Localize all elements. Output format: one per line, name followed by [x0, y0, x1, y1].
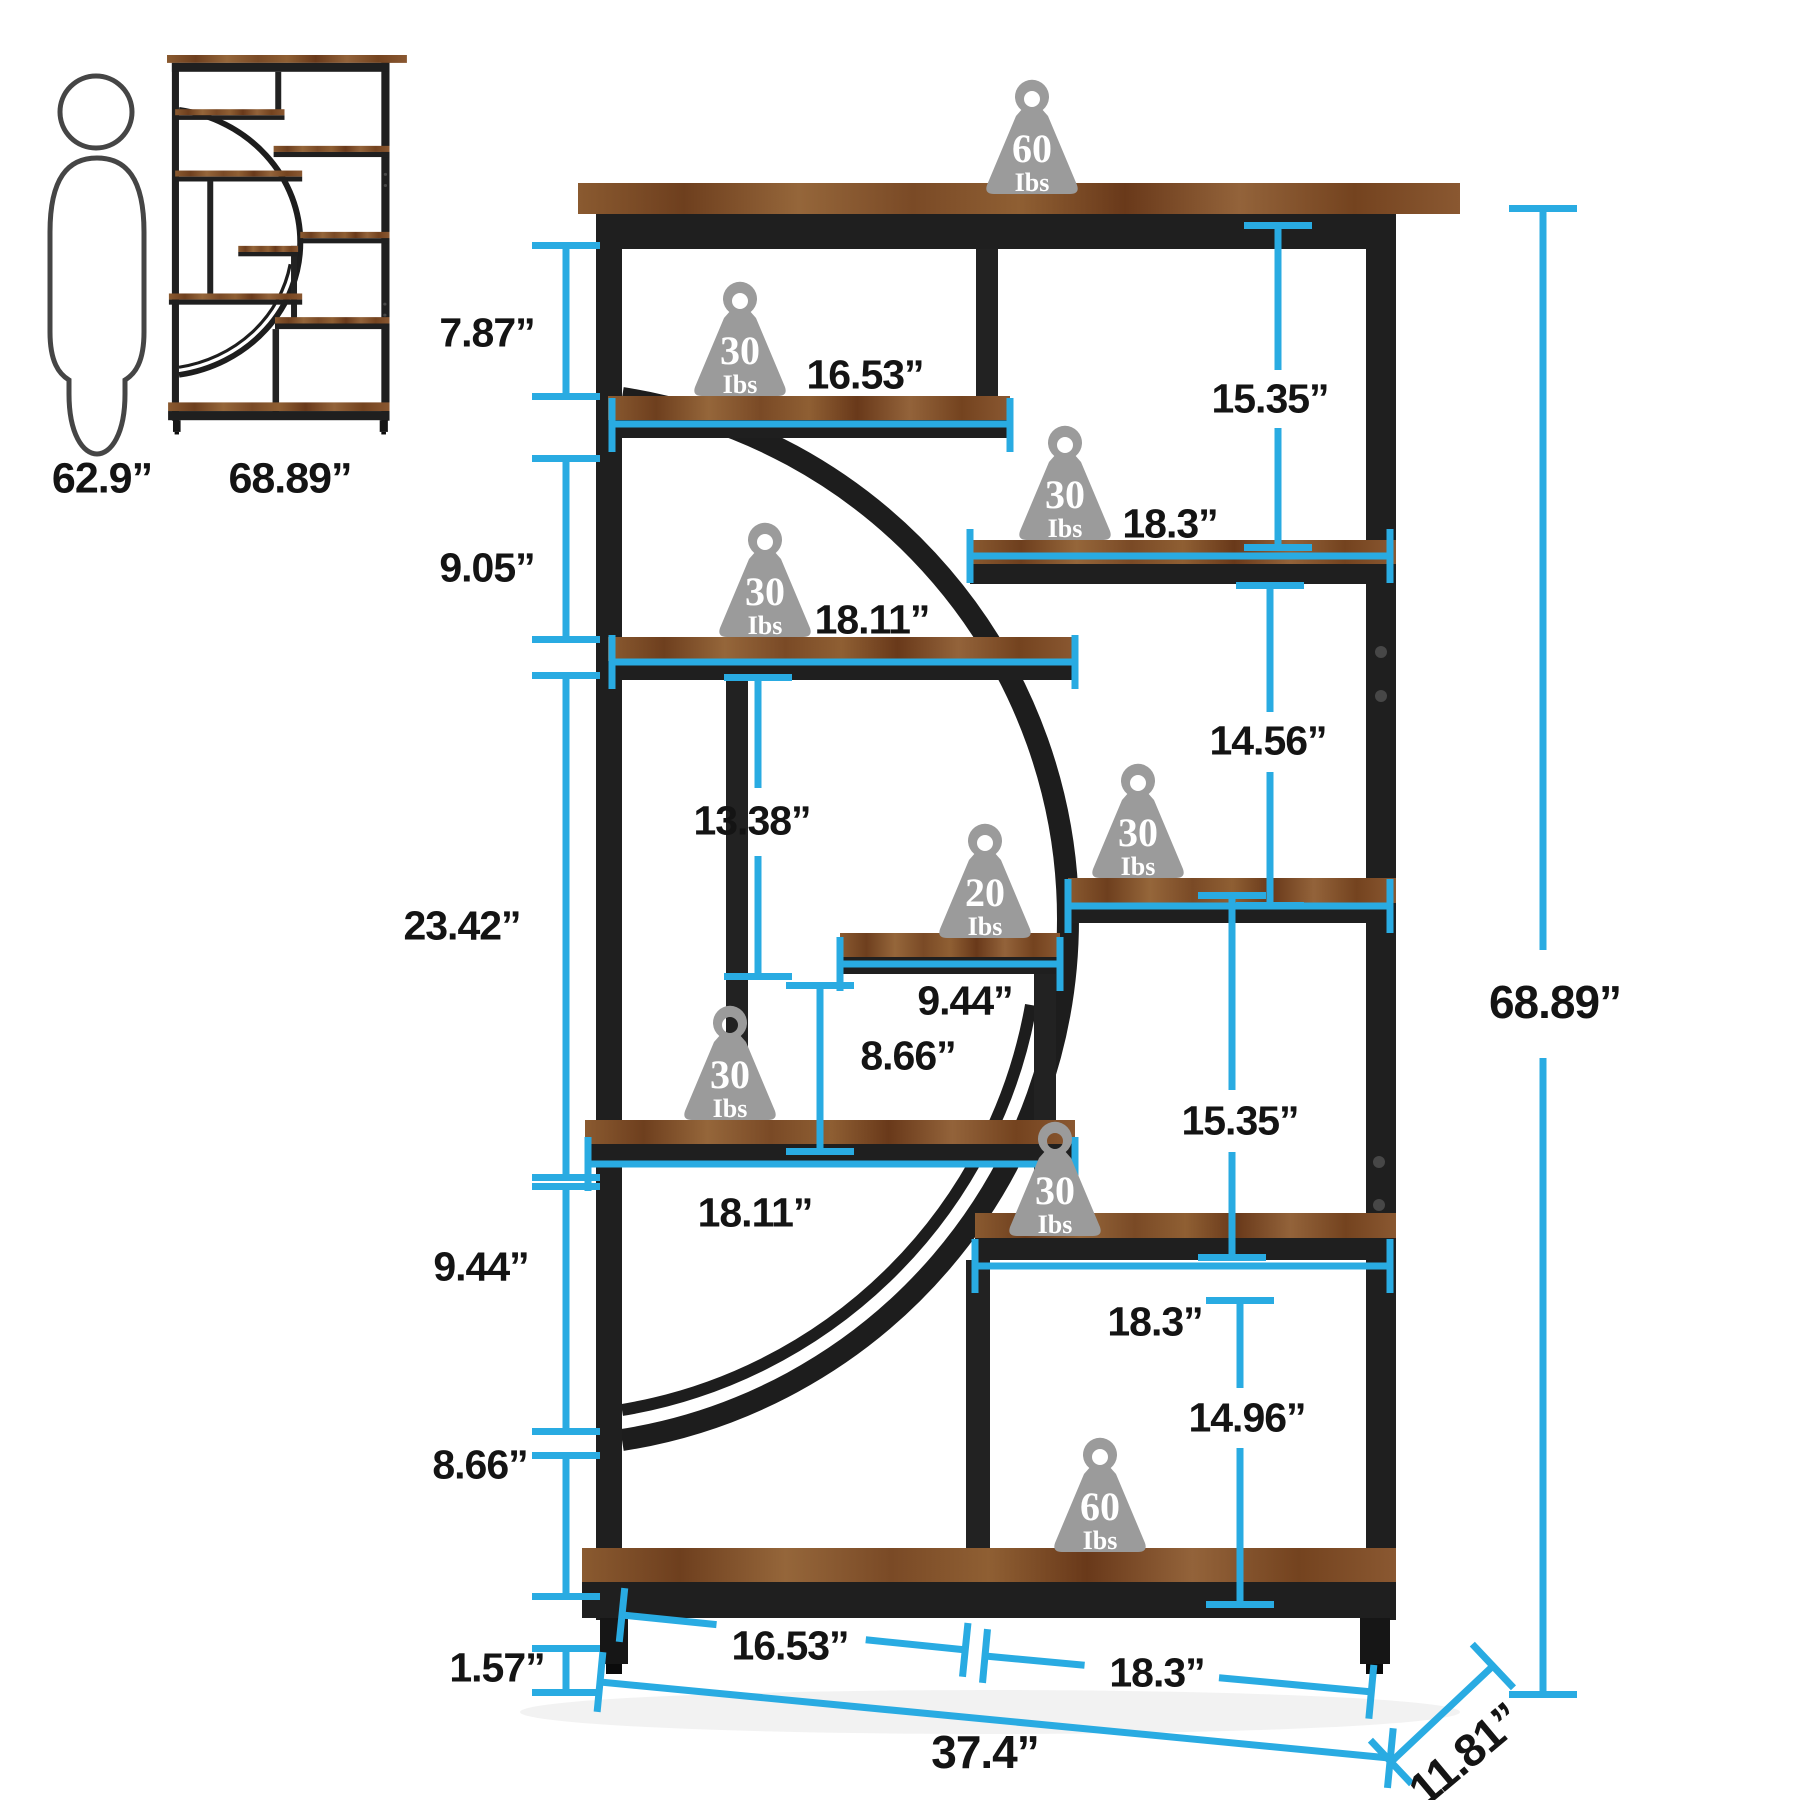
- svg-text:30: 30: [720, 328, 760, 373]
- label-thumbnail-height: 68.89”: [228, 458, 351, 501]
- weight-badge-shelf-b: 30 Ibs: [719, 523, 810, 640]
- label-width-18-3-top: 18.3”: [1122, 504, 1217, 545]
- dim-line-9-05: [532, 455, 600, 643]
- svg-text:30: 30: [745, 569, 785, 614]
- dim-line-7-87: [532, 242, 600, 400]
- weight-badge-bottom: 60 Ibs: [1054, 1438, 1145, 1555]
- label-width-18-11-lower: 18.11”: [698, 1193, 813, 1234]
- label-width-9-44: 9.44”: [917, 981, 1012, 1022]
- feet: [600, 1618, 1390, 1674]
- svg-text:30: 30: [710, 1052, 750, 1097]
- label-width-18-11-upper: 18.11”: [815, 600, 930, 641]
- svg-text:20: 20: [965, 870, 1005, 915]
- divider-post-top: [976, 249, 998, 399]
- diagram-canvas: 60 Ibs 30 Ibs 30 Ibs 30 Ibs 30 Ibs 20 Ib…: [0, 0, 1800, 1800]
- shelf-r1: [970, 540, 1396, 584]
- svg-text:Ibs: Ibs: [748, 611, 783, 640]
- dim-line-23-42: [532, 672, 600, 1181]
- shelf-a: [608, 396, 1010, 438]
- svg-text:Ibs: Ibs: [723, 370, 758, 399]
- weight-badge-shelf-a: 30 Ibs: [694, 282, 785, 399]
- label-height-8-66: 8.66”: [432, 1445, 527, 1486]
- label-width-18-3-bottom: 18.3”: [1109, 1653, 1204, 1694]
- label-gap-8-66: 8.66”: [860, 1036, 955, 1077]
- svg-text:30: 30: [1045, 472, 1085, 517]
- svg-text:Ibs: Ibs: [1038, 1210, 1073, 1239]
- product-dimension-diagram: 60 Ibs 30 Ibs 30 Ibs 30 Ibs 30 Ibs 20 Ib…: [0, 0, 1800, 1800]
- label-human-height: 62.9”: [52, 458, 152, 501]
- human-figure: [50, 76, 144, 454]
- label-height-9-44: 9.44”: [433, 1247, 528, 1288]
- label-width-16-53-bottom: 16.53”: [731, 1626, 848, 1667]
- human-body-icon: [50, 158, 144, 454]
- label-overall-height: 68.89”: [1489, 979, 1621, 1025]
- label-gap-13-38: 13.38”: [693, 801, 810, 842]
- label-height-7-87: 7.87”: [439, 313, 534, 354]
- label-height-1-57: 1.57”: [449, 1648, 544, 1689]
- svg-text:Ibs: Ibs: [713, 1094, 748, 1123]
- svg-text:Ibs: Ibs: [1015, 168, 1050, 197]
- svg-text:Ibs: Ibs: [1048, 514, 1083, 543]
- weight-badge-shelf-r2: 30 Ibs: [1092, 764, 1183, 881]
- label-width-18-3-mid: 18.3”: [1107, 1302, 1202, 1343]
- weight-badge-shelf-small: 20 Ibs: [939, 824, 1030, 941]
- dim-line-15-35-lower: [1198, 892, 1266, 1261]
- label-height-15-35-lower: 15.35”: [1181, 1101, 1298, 1142]
- weight-badge-top: 60 Ibs: [986, 80, 1077, 197]
- human-head-icon: [60, 76, 132, 148]
- label-overall-width: 37.4”: [931, 1729, 1039, 1775]
- bookshelf-thumbnail: [167, 55, 407, 434]
- svg-text:60: 60: [1080, 1484, 1120, 1529]
- svg-text:30: 30: [1118, 810, 1158, 855]
- label-width-16-53-top: 16.53”: [806, 355, 923, 396]
- label-height-9-05: 9.05”: [439, 548, 534, 589]
- shelf-c: [585, 1120, 1075, 1164]
- svg-text:Ibs: Ibs: [1083, 1526, 1118, 1555]
- dim-line-68-89: [1509, 205, 1577, 1698]
- shelf-small: [840, 933, 1060, 974]
- label-height-14-56: 14.56”: [1209, 721, 1326, 762]
- weight-badge-shelf-r1: 30 Ibs: [1019, 426, 1110, 543]
- dim-line-9-44-left: [532, 1183, 600, 1435]
- svg-text:60: 60: [1012, 126, 1052, 171]
- label-height-23-42: 23.42”: [403, 906, 520, 947]
- svg-text:30: 30: [1035, 1168, 1075, 1213]
- divider-post-bottom: [966, 1260, 990, 1584]
- label-height-14-96: 14.96”: [1188, 1398, 1305, 1439]
- label-height-15-35-top: 15.35”: [1211, 379, 1328, 420]
- svg-text:Ibs: Ibs: [1121, 852, 1156, 881]
- svg-text:Ibs: Ibs: [968, 912, 1003, 941]
